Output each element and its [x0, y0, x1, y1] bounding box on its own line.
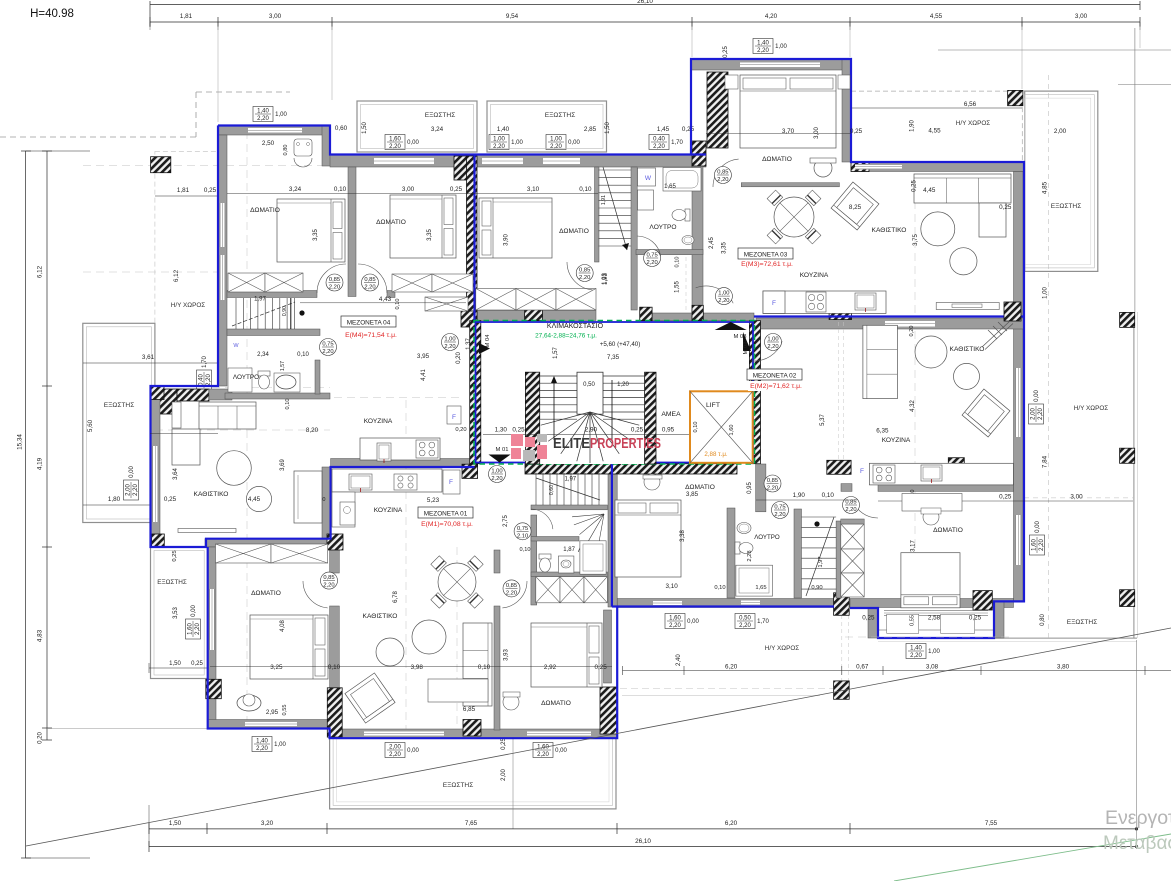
svg-text:ΚΟΥΖΙΝΑ: ΚΟΥΖΙΝΑ: [882, 437, 911, 444]
svg-text:2,34: 2,34: [257, 352, 269, 358]
svg-text:1,45: 1,45: [657, 126, 670, 133]
svg-text:2,20: 2,20: [774, 512, 785, 518]
svg-text:ΜΕΖΟΝΕΤΑ 03: ΜΕΖΟΝΕΤΑ 03: [744, 252, 788, 259]
svg-text:1,65: 1,65: [664, 184, 676, 190]
svg-text:F: F: [860, 468, 864, 475]
svg-text:2,10: 2,10: [517, 533, 528, 539]
svg-text:0,75: 0,75: [322, 342, 333, 348]
svg-text:ΚΑΘΙΣΤΙΚΟ: ΚΑΘΙΣΤΙΚΟ: [194, 491, 229, 498]
svg-text:1,60: 1,60: [729, 425, 735, 436]
svg-text:0,00: 0,00: [687, 619, 699, 625]
svg-text:1,65: 1,65: [755, 585, 766, 591]
svg-text:3,00: 3,00: [402, 186, 415, 193]
svg-text:ΕΞΩΣΤΗΣ: ΕΞΩΣΤΗΣ: [545, 112, 576, 119]
svg-text:0,25: 0,25: [172, 550, 178, 561]
svg-text:2,20: 2,20: [757, 48, 769, 54]
svg-text:Η/Υ ΧΩΡΟΣ: Η/Υ ΧΩΡΟΣ: [171, 302, 206, 309]
svg-text:+5,60 (+47,40): +5,60 (+47,40): [600, 341, 641, 348]
svg-text:0,00: 0,00: [568, 140, 580, 146]
svg-text:LIFT: LIFT: [706, 402, 720, 409]
svg-text:5,60: 5,60: [87, 419, 94, 432]
svg-text:3,35: 3,35: [721, 242, 727, 254]
svg-text:1,87: 1,87: [563, 547, 575, 553]
svg-text:1,00: 1,00: [718, 291, 729, 297]
svg-text:ΚΟΥΖΙΝΑ: ΚΟΥΖΙΝΑ: [800, 272, 829, 279]
svg-text:1,00: 1,00: [274, 742, 286, 748]
svg-text:3,10: 3,10: [665, 583, 678, 590]
svg-text:1,81: 1,81: [177, 187, 190, 194]
svg-text:0,10: 0,10: [674, 257, 680, 268]
svg-text:ΔΩΜΑΤΙΟ: ΔΩΜΑΤΙΟ: [250, 207, 280, 214]
svg-text:1,81: 1,81: [180, 13, 193, 20]
svg-text:0,25: 0,25: [682, 126, 695, 133]
svg-text:1,00: 1,00: [491, 469, 502, 475]
svg-text:ΜΕΖΟΝΕΤΑ 01: ΜΕΖΟΝΕΤΑ 01: [424, 511, 468, 518]
svg-text:3,00: 3,00: [814, 127, 820, 139]
svg-text:0,40: 0,40: [653, 137, 665, 143]
svg-text:3,90: 3,90: [504, 234, 510, 246]
svg-text:0,60: 0,60: [335, 125, 348, 132]
svg-text:2,20: 2,20: [364, 285, 375, 291]
svg-text:2,45: 2,45: [709, 237, 715, 249]
svg-text:0,10: 0,10: [285, 399, 291, 410]
svg-text:0,25: 0,25: [164, 496, 177, 503]
svg-text:0,75: 0,75: [646, 253, 657, 259]
svg-text:1,00: 1,00: [775, 44, 787, 50]
svg-text:6,12: 6,12: [37, 265, 44, 278]
svg-text:2,75: 2,75: [503, 515, 509, 527]
svg-text:1,70: 1,70: [202, 356, 208, 368]
svg-text:2,20: 2,20: [537, 752, 549, 758]
svg-text:1,50: 1,50: [362, 122, 368, 134]
svg-text:0,00: 0,00: [407, 748, 419, 754]
svg-text:3,80: 3,80: [1057, 663, 1070, 670]
svg-text:2,20: 2,20: [767, 344, 778, 350]
svg-text:2,20: 2,20: [717, 177, 728, 183]
svg-text:ΔΩΜΑΤΙΟ: ΔΩΜΑΤΙΟ: [762, 156, 792, 163]
svg-text:1,40: 1,40: [910, 646, 922, 652]
svg-text:2,20: 2,20: [653, 144, 665, 150]
svg-text:F: F: [772, 300, 776, 307]
svg-text:1,90: 1,90: [909, 120, 915, 132]
svg-text:5,23: 5,23: [427, 497, 440, 504]
svg-text:2,20: 2,20: [133, 484, 139, 496]
svg-text:4,41: 4,41: [421, 369, 427, 381]
svg-text:2,00: 2,00: [1031, 408, 1037, 420]
svg-text:2,20: 2,20: [1039, 539, 1045, 551]
svg-text:0,25: 0,25: [501, 738, 507, 750]
svg-text:0,40: 0,40: [199, 374, 205, 386]
svg-text:F: F: [452, 414, 456, 421]
svg-text:3,53: 3,53: [173, 607, 179, 619]
svg-text:2,20: 2,20: [739, 623, 751, 629]
svg-text:3,00: 3,00: [269, 13, 282, 20]
svg-text:PROPERTIES: PROPERTIES: [590, 435, 661, 452]
svg-text:M 01: M 01: [496, 447, 509, 453]
svg-text:1,60: 1,60: [669, 616, 681, 622]
svg-text:0,85: 0,85: [845, 500, 856, 506]
svg-text:ΔΩΜΑΤΙΟ: ΔΩΜΑΤΙΟ: [685, 484, 715, 491]
svg-text:0,25: 0,25: [191, 661, 203, 667]
svg-text:2,40: 2,40: [676, 654, 682, 666]
svg-text:2,20: 2,20: [845, 507, 856, 513]
svg-text:3,70: 3,70: [782, 128, 795, 135]
svg-text:ΔΩΜΑΤΙΟ: ΔΩΜΑΤΙΟ: [376, 219, 406, 226]
svg-text:1,57: 1,57: [280, 361, 286, 371]
svg-text:6,20: 6,20: [725, 663, 738, 670]
svg-text:2,20: 2,20: [550, 144, 562, 150]
svg-text:ΚΑΘΙΣΤΙΚΟ: ΚΑΘΙΣΤΙΚΟ: [950, 346, 985, 353]
svg-text:Μεταβαση: Μεταβαση: [1103, 833, 1171, 854]
svg-text:ΚΟΥΖΙΝΑ: ΚΟΥΖΙΝΑ: [374, 507, 403, 514]
svg-text:0,85: 0,85: [767, 478, 778, 484]
svg-text:0,25: 0,25: [850, 128, 863, 135]
svg-text:4,32: 4,32: [910, 400, 916, 412]
svg-text:0,00: 0,00: [129, 466, 135, 478]
svg-text:ΚΟΥΖΙΝΑ: ΚΟΥΖΙΝΑ: [364, 418, 393, 425]
svg-text:1,37: 1,37: [466, 338, 472, 350]
svg-text:0,25: 0,25: [723, 46, 729, 58]
svg-text:2,20: 2,20: [329, 285, 340, 291]
svg-text:ΔΩΜΑΤΙΟ: ΔΩΜΑΤΙΟ: [251, 590, 281, 597]
svg-text:0,10: 0,10: [579, 186, 592, 193]
svg-text:0,85: 0,85: [506, 583, 517, 589]
svg-text:0,25: 0,25: [594, 664, 607, 671]
svg-text:1,60: 1,60: [389, 137, 401, 143]
svg-text:3,24: 3,24: [431, 126, 444, 133]
svg-text:ΛΟΥΤΡΟ: ΛΟΥΤΡΟ: [233, 374, 259, 381]
svg-text:27,64-2,88=24,76 τ.μ.: 27,64-2,88=24,76 τ.μ.: [535, 333, 597, 340]
svg-text:1,91: 1,91: [601, 195, 607, 205]
svg-text:4,83: 4,83: [37, 629, 44, 642]
svg-text:2,20: 2,20: [493, 144, 505, 150]
svg-text:0,10: 0,10: [297, 352, 309, 358]
svg-text:0,25: 0,25: [999, 204, 1012, 211]
svg-text:7,55: 7,55: [985, 820, 998, 827]
svg-text:1,40: 1,40: [497, 126, 510, 133]
svg-text:1,57: 1,57: [553, 347, 559, 359]
svg-text:2,20: 2,20: [444, 344, 455, 350]
svg-text:0,90: 0,90: [811, 585, 822, 591]
svg-text:0,25: 0,25: [999, 494, 1012, 501]
svg-text:2,20: 2,20: [257, 116, 269, 122]
svg-text:2,20: 2,20: [323, 583, 334, 589]
svg-text:3,95: 3,95: [417, 353, 430, 360]
svg-text:2,00: 2,00: [501, 769, 507, 781]
svg-text:1,93: 1,93: [602, 273, 608, 285]
svg-text:ΕΞΩΣΤΗΣ: ΕΞΩΣΤΗΣ: [104, 402, 135, 409]
svg-text:1,20: 1,20: [617, 382, 629, 388]
svg-text:15,34: 15,34: [17, 434, 24, 450]
svg-text:2,88 τ.μ.: 2,88 τ.μ.: [704, 451, 727, 458]
svg-text:3,10: 3,10: [527, 186, 540, 193]
svg-text:9,54: 9,54: [506, 13, 519, 20]
svg-text:E(M1)=70,08 τ.μ.: E(M1)=70,08 τ.μ.: [421, 521, 473, 528]
svg-text:0,20: 0,20: [456, 352, 462, 364]
svg-text:ΕΞΩΣΤΗΣ: ΕΞΩΣΤΗΣ: [425, 112, 456, 119]
svg-text:2,90: 2,90: [585, 427, 598, 434]
svg-text:ΛΟΥΤΡΟ: ΛΟΥΤΡΟ: [649, 224, 676, 231]
svg-text:0,25: 0,25: [912, 180, 918, 192]
svg-text:4,19: 4,19: [37, 457, 44, 470]
svg-text:0,85: 0,85: [329, 277, 340, 283]
svg-text:3,61: 3,61: [142, 354, 155, 361]
svg-text:2,58: 2,58: [928, 615, 941, 622]
svg-text:2,00: 2,00: [389, 745, 401, 751]
svg-text:Η/Υ ΧΩΡΟΣ: Η/Υ ΧΩΡΟΣ: [765, 645, 800, 652]
svg-text:1,00: 1,00: [550, 137, 562, 143]
svg-text:0,25: 0,25: [512, 427, 525, 434]
svg-text:3,20: 3,20: [261, 820, 274, 827]
svg-text:0,85: 0,85: [717, 170, 728, 176]
svg-text:2,20: 2,20: [1038, 408, 1044, 420]
svg-text:3,00: 3,00: [1070, 494, 1083, 501]
svg-text:0,10: 0,10: [693, 422, 699, 433]
svg-text:1,97: 1,97: [254, 297, 266, 303]
svg-text:0,25: 0,25: [969, 615, 982, 622]
svg-text:1,00: 1,00: [511, 140, 523, 146]
svg-text:2,20: 2,20: [322, 349, 333, 355]
svg-text:2,20: 2,20: [669, 623, 681, 629]
svg-text:ΕΞΩΣΤΗΣ: ΕΞΩΣΤΗΣ: [443, 782, 474, 789]
svg-text:1,97: 1,97: [818, 556, 824, 567]
svg-text:2,00: 2,00: [1054, 128, 1067, 135]
svg-text:0,85: 0,85: [579, 268, 590, 274]
svg-text:ΜΕΖΟΝΕΤΑ 02: ΜΕΖΟΝΕΤΑ 02: [753, 373, 797, 380]
svg-text:3,69: 3,69: [280, 459, 286, 471]
svg-text:3,98: 3,98: [411, 664, 424, 671]
svg-text:6,12: 6,12: [173, 269, 180, 282]
svg-text:0,25: 0,25: [450, 186, 463, 193]
svg-text:3,93: 3,93: [504, 649, 510, 661]
svg-text:M 02: M 02: [743, 342, 749, 355]
svg-text:2,20: 2,20: [389, 144, 401, 150]
svg-text:6,78: 6,78: [393, 591, 399, 603]
svg-text:1,90: 1,90: [793, 492, 806, 499]
svg-text:ΕΞΩΣΤΗΣ: ΕΞΩΣΤΗΣ: [1051, 203, 1082, 210]
svg-text:0,00: 0,00: [407, 140, 419, 146]
svg-text:2,50: 2,50: [262, 140, 275, 147]
svg-text:1,00: 1,00: [1043, 287, 1049, 299]
svg-text:2,20: 2,20: [389, 752, 401, 758]
svg-text:ΕΞΩΣΤΗΣ: ΕΞΩΣΤΗΣ: [1067, 619, 1098, 626]
svg-text:1,00: 1,00: [928, 649, 940, 655]
svg-text:6,35: 6,35: [876, 428, 889, 435]
svg-text:0,20: 0,20: [455, 427, 466, 433]
svg-text:1,00: 1,00: [444, 337, 455, 343]
svg-text:ΚΑΘΙΣΤΙΚΟ: ΚΑΘΙΣΤΙΚΟ: [872, 227, 907, 234]
svg-text:ΚΛΙΜΑΚΟΣΤΑΣΙΟ: ΚΛΙΜΑΚΟΣΤΑΣΙΟ: [547, 323, 604, 330]
svg-text:26,10: 26,10: [635, 838, 651, 845]
svg-text:W: W: [645, 175, 652, 182]
svg-text:1,40: 1,40: [757, 41, 769, 47]
svg-text:0,95: 0,95: [662, 427, 675, 434]
svg-text:1,00: 1,00: [275, 112, 287, 118]
svg-text:W: W: [233, 343, 239, 349]
svg-text:2,20: 2,20: [579, 275, 590, 281]
svg-text:2,20: 2,20: [718, 298, 729, 304]
svg-text:F: F: [449, 479, 453, 486]
svg-text:1,70: 1,70: [757, 619, 769, 625]
svg-text:0,25: 0,25: [862, 615, 875, 622]
svg-text:ΑΜΕΑ: ΑΜΕΑ: [661, 411, 681, 418]
svg-text:0,10: 0,10: [395, 299, 401, 310]
svg-text:0,55: 0,55: [282, 705, 288, 716]
svg-text:6,56: 6,56: [964, 101, 977, 108]
svg-text:4,08: 4,08: [280, 620, 286, 632]
svg-text:1,80: 1,80: [108, 496, 121, 503]
svg-text:3,35: 3,35: [313, 229, 319, 241]
svg-text:0,50: 0,50: [583, 382, 595, 388]
svg-text:0,85: 0,85: [364, 277, 375, 283]
svg-text:3,38: 3,38: [680, 530, 686, 542]
svg-text:7,35: 7,35: [607, 354, 620, 361]
svg-text:0,60: 0,60: [549, 485, 555, 495]
svg-text:ΔΩΜΑΤΙΟ: ΔΩΜΑΤΙΟ: [933, 527, 963, 534]
svg-text:2,20: 2,20: [195, 623, 201, 635]
svg-text:6,20: 6,20: [725, 820, 738, 827]
svg-text:1,70: 1,70: [671, 140, 683, 146]
svg-text:0,85: 0,85: [323, 575, 334, 581]
svg-text:0,10: 0,10: [334, 186, 347, 193]
svg-text:0,67: 0,67: [856, 663, 869, 670]
svg-text:6,85: 6,85: [463, 706, 476, 713]
svg-text:2,95: 2,95: [266, 709, 279, 716]
svg-text:2,20: 2,20: [206, 374, 212, 386]
svg-text:7,84: 7,84: [1042, 455, 1049, 468]
svg-text:4,20: 4,20: [765, 13, 778, 20]
svg-text:M 04: M 04: [485, 334, 491, 348]
svg-text:2,28: 2,28: [747, 550, 753, 561]
svg-text:1,30: 1,30: [495, 427, 508, 434]
svg-text:Ενεργοτ: Ενεργοτ: [1105, 807, 1171, 829]
svg-text:0,00: 0,00: [1035, 521, 1041, 533]
svg-text:ΕΞΩΣΤΗΣ: ΕΞΩΣΤΗΣ: [157, 579, 187, 586]
svg-text:0,80: 0,80: [1040, 614, 1046, 626]
svg-text:0,00: 0,00: [555, 748, 567, 754]
svg-text:Η/Υ ΧΩΡΟΣ: Η/Υ ΧΩΡΟΣ: [1074, 405, 1109, 412]
svg-text:0,90: 0,90: [282, 306, 288, 316]
svg-text:2,20: 2,20: [491, 476, 502, 482]
svg-text:2,20: 2,20: [256, 746, 268, 752]
svg-text:4,43: 4,43: [379, 296, 392, 303]
svg-text:3,75: 3,75: [913, 234, 919, 246]
svg-text:2,20: 2,20: [910, 653, 922, 659]
svg-text:0,10: 0,10: [714, 585, 725, 591]
svg-text:2,00: 2,00: [126, 484, 132, 496]
svg-text:0,20: 0,20: [38, 732, 44, 744]
svg-text:ΔΩΜΑΤΙΟ: ΔΩΜΑΤΙΟ: [541, 700, 571, 707]
svg-text:Η/Υ ΧΩΡΟΣ: Η/Υ ΧΩΡΟΣ: [956, 120, 991, 127]
svg-text:0,10: 0,10: [520, 547, 531, 553]
svg-text:1,50: 1,50: [605, 122, 611, 134]
svg-text:0,25: 0,25: [204, 187, 217, 194]
svg-text:0,20: 0,20: [909, 326, 915, 337]
svg-text:0,00: 0,00: [191, 605, 197, 617]
svg-text:4,55: 4,55: [928, 128, 941, 135]
svg-text:ΛΟΥΤΡΟ: ΛΟΥΤΡΟ: [754, 534, 780, 541]
svg-text:7,65: 7,65: [465, 820, 478, 827]
svg-text:1,40: 1,40: [257, 109, 269, 115]
svg-text:1,40: 1,40: [256, 739, 268, 745]
svg-text:0,25: 0,25: [631, 427, 644, 434]
svg-text:26,10: 26,10: [637, 0, 653, 5]
svg-text:ΔΩΜΑΤΙΟ: ΔΩΜΑΤΙΟ: [559, 228, 589, 235]
svg-text:0,00: 0,00: [1034, 390, 1040, 402]
svg-text:4,45: 4,45: [923, 187, 936, 194]
svg-text:4,45: 4,45: [248, 496, 261, 503]
svg-text:0,75: 0,75: [774, 505, 785, 511]
svg-text:H=40.98: H=40.98: [30, 8, 74, 20]
svg-text:8,20: 8,20: [306, 427, 319, 434]
svg-text:1,55: 1,55: [674, 281, 680, 293]
svg-text:3,17: 3,17: [911, 540, 917, 552]
svg-text:ELITE: ELITE: [553, 435, 590, 452]
svg-text:3,24: 3,24: [289, 186, 302, 193]
svg-text:3,25: 3,25: [270, 664, 283, 671]
svg-text:1,00: 1,00: [767, 337, 778, 343]
svg-text:1,60: 1,60: [1032, 539, 1038, 551]
svg-text:0,80: 0,80: [283, 145, 289, 156]
svg-text:1,50: 1,50: [169, 820, 182, 827]
svg-text:3,64: 3,64: [173, 468, 179, 480]
svg-text:2,92: 2,92: [544, 664, 557, 671]
svg-text:3,08: 3,08: [926, 663, 939, 670]
svg-text:2,20: 2,20: [767, 486, 778, 492]
svg-text:0,10: 0,10: [478, 664, 491, 671]
svg-text:0,10: 0,10: [328, 664, 341, 671]
svg-text:8,25: 8,25: [849, 204, 862, 211]
svg-text:4,85: 4,85: [1042, 181, 1049, 194]
svg-text:2,20: 2,20: [506, 590, 517, 596]
svg-text:0,50: 0,50: [739, 616, 751, 622]
svg-text:1,00: 1,00: [493, 137, 505, 143]
svg-text:4,55: 4,55: [930, 13, 943, 20]
svg-text:1,50: 1,50: [169, 661, 181, 667]
svg-text:E(M2)=71,62 τ.μ.: E(M2)=71,62 τ.μ.: [750, 383, 802, 390]
svg-text:3,85: 3,85: [686, 491, 699, 498]
svg-text:0,10: 0,10: [822, 492, 835, 499]
svg-text:ΚΑΘΙΣΤΙΚΟ: ΚΑΘΙΣΤΙΚΟ: [363, 613, 398, 620]
svg-text:3,35: 3,35: [427, 229, 433, 241]
svg-text:1,60: 1,60: [188, 623, 194, 635]
svg-text:ΜΕΖΟΝΕΤΑ 04: ΜΕΖΟΝΕΤΑ 04: [347, 320, 391, 327]
svg-text:0,95: 0,95: [747, 482, 753, 494]
svg-text:1,97: 1,97: [564, 477, 576, 483]
svg-text:2,20: 2,20: [646, 260, 657, 266]
svg-text:5,37: 5,37: [820, 414, 826, 426]
svg-text:3,00: 3,00: [1075, 13, 1088, 20]
svg-text:0,75: 0,75: [517, 526, 528, 532]
svg-text:E(M4)=71,54 τ.μ.: E(M4)=71,54 τ.μ.: [345, 332, 397, 339]
svg-text:0,55: 0,55: [910, 615, 916, 626]
svg-text:E(M3)=72,61 τ.μ.: E(M3)=72,61 τ.μ.: [741, 261, 793, 268]
svg-text:2,85: 2,85: [584, 126, 597, 133]
